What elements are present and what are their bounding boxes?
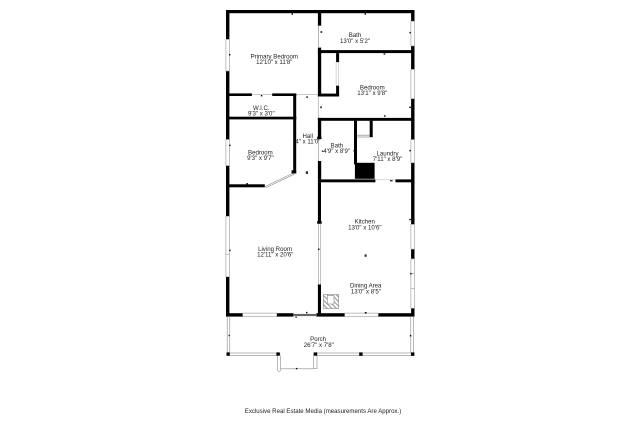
svg-text:7'11" x 8'9": 7'11" x 8'9" <box>373 156 403 163</box>
svg-text:13'0" x 5'2": 13'0" x 5'2" <box>340 38 370 45</box>
svg-text:4'9" x 8'9": 4'9" x 8'9" <box>323 148 350 155</box>
svg-text:13'0" x 10'6": 13'0" x 10'6" <box>348 224 381 231</box>
svg-text:26'7" x 7'8": 26'7" x 7'8" <box>304 342 334 349</box>
svg-text:12'10" x 11'8": 12'10" x 11'8" <box>256 59 292 66</box>
svg-text:9'3" x 9'7": 9'3" x 9'7" <box>247 155 274 162</box>
svg-text:9'3" x 3'0": 9'3" x 3'0" <box>248 111 275 118</box>
svg-text:12'11" x 20'6": 12'11" x 20'6" <box>257 252 293 259</box>
svg-text:13'1" x 9'8": 13'1" x 9'8" <box>357 90 387 97</box>
svg-text:Exclusive Real Estate Media (m: Exclusive Real Estate Media (measurement… <box>245 408 401 415</box>
svg-text:13'0" x 8'5": 13'0" x 8'5" <box>351 289 381 296</box>
svg-text:'4" x 11'0": '4" x 11'0" <box>294 139 320 146</box>
